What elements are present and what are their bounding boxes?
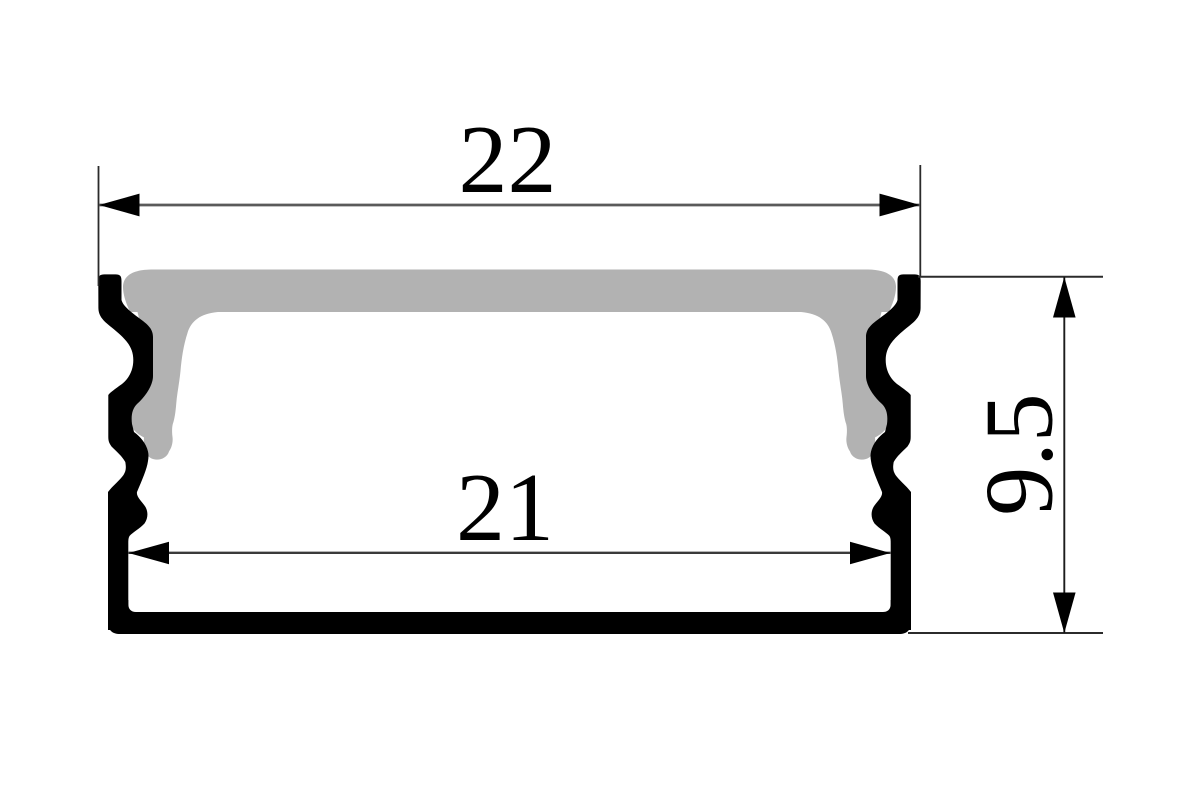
svg-text:9.5: 9.5 xyxy=(966,393,1074,516)
svg-text:22: 22 xyxy=(459,106,557,214)
svg-text:21: 21 xyxy=(456,454,554,562)
